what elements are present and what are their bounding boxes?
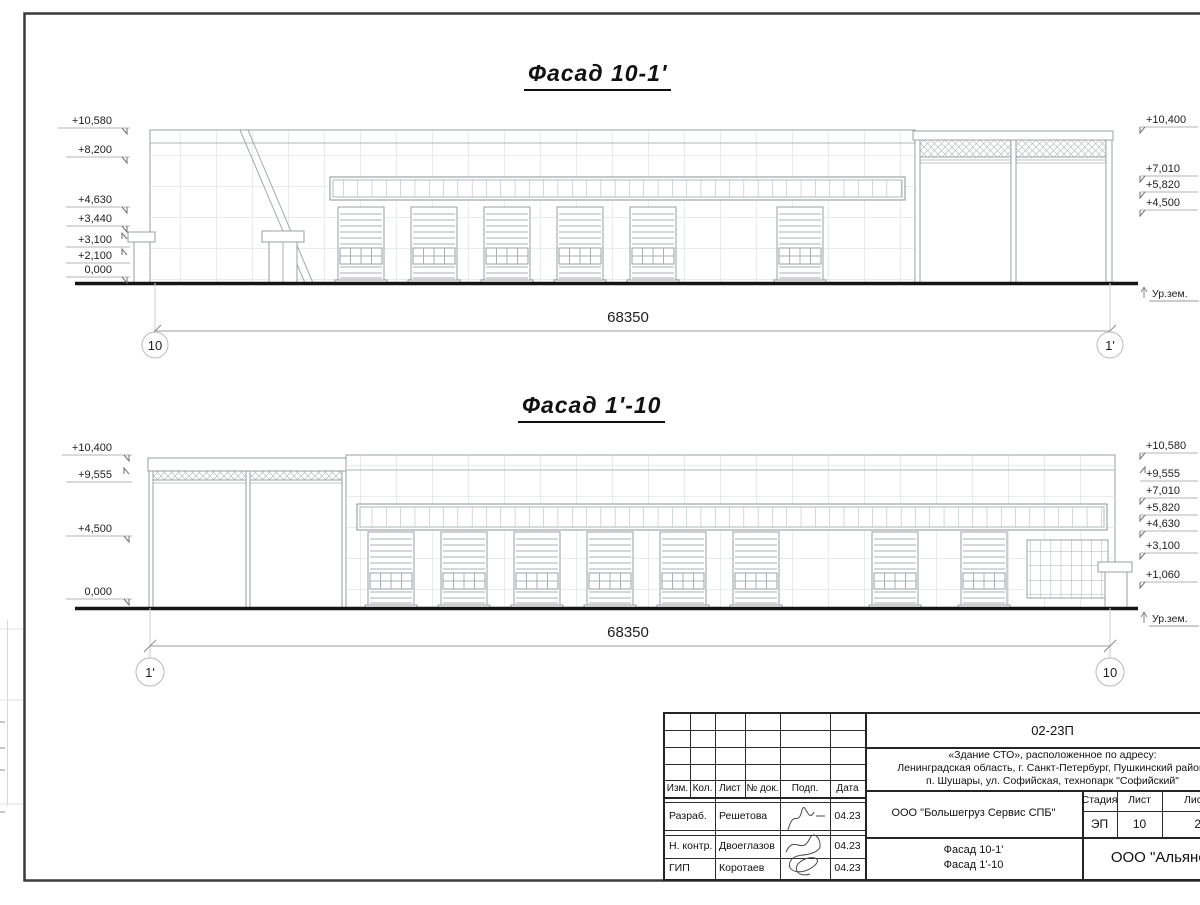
facade-bottom-title: Фасад 1'-10 xyxy=(518,392,665,423)
elevation-mark: +9,555 xyxy=(1146,468,1180,480)
elevation-mark: +3,100 xyxy=(1146,540,1180,552)
window-ribbon xyxy=(330,177,905,200)
row-role-gip: ГИП xyxy=(665,858,719,879)
axis-bubble-left: 10 xyxy=(142,332,168,358)
window-ribbon xyxy=(357,504,1107,530)
company-name: ООО "Большегруз Сервис СПБ" xyxy=(865,790,1082,837)
row-date-ncontrol: 04.23 xyxy=(830,835,865,858)
adjacent-sheet-sliver xyxy=(0,620,23,812)
axis-bubble-left: 1' xyxy=(136,658,164,686)
axis-bubble-right: 1' xyxy=(1097,332,1123,358)
elevation-marks-right: +10,580 +9,555 +7,010 +5,820 +4,630 +3,1… xyxy=(1140,440,1198,588)
drawing-sheet: Ур.зем. 68350 10 1' +10,580 +8,200 +4,63… xyxy=(0,0,1200,900)
side-canopy xyxy=(128,232,155,242)
elevation-marks-left: +10,580 +8,200 +4,630 +3,440 +3,100 +2,1… xyxy=(58,115,130,283)
row-name-gip: Коротаев xyxy=(715,858,784,879)
dimension-bottom: 68350 xyxy=(144,608,1116,658)
elevation-mark: +3,100 xyxy=(78,234,112,246)
contractor-name: ООО "Альянс" xyxy=(1082,837,1200,879)
ground-level-label: Ур.зем. xyxy=(1141,612,1199,626)
canopy-left xyxy=(148,458,348,608)
row-role-ncontrol: Н. контр. xyxy=(665,835,719,858)
col-header-list: Лист xyxy=(715,780,745,797)
elevation-mark: +8,200 xyxy=(78,144,112,156)
signature-ncontrol-gip xyxy=(780,832,830,880)
sheets-label: Листов xyxy=(1162,790,1200,811)
row-date-developer: 04.23 xyxy=(830,802,865,830)
axis-label: 1' xyxy=(1105,338,1115,353)
stage-value: ЭП xyxy=(1082,811,1117,837)
ground-label-text: Ур.зем. xyxy=(1152,288,1188,300)
elevation-mark: +10,580 xyxy=(72,115,112,127)
project-code: 02-23П xyxy=(865,714,1200,747)
elevation-mark: +5,820 xyxy=(1146,179,1180,191)
row-date-gip: 04.23 xyxy=(830,858,865,879)
elevation-mark: +4,500 xyxy=(1146,197,1180,209)
ground-label-text: Ур.зем. xyxy=(1152,613,1188,625)
elevation-mark: 0,000 xyxy=(84,264,112,276)
elevation-mark: +2,100 xyxy=(78,250,112,262)
elevation-mark: +4,630 xyxy=(1146,518,1180,530)
canopy-right xyxy=(913,131,1113,283)
address-line2: Ленинградская область, г. Санкт-Петербур… xyxy=(897,762,1200,775)
elevation-mark: +7,010 xyxy=(1146,485,1180,497)
elevation-mark: +9,555 xyxy=(78,469,112,481)
elevation-mark: +5,820 xyxy=(1146,502,1180,514)
elevation-marks-left: +10,400 +9,555 +4,500 0,000 xyxy=(62,442,132,605)
address-line3: п. Шушары, ул. Софийская, технопарк "Соф… xyxy=(926,775,1179,788)
facade-top-title: Фасад 10-1' xyxy=(524,60,671,91)
col-header-izm: Изм. xyxy=(665,780,690,797)
curtain-wall-window xyxy=(1027,540,1108,598)
col-header-podp: Подп. xyxy=(780,780,830,797)
col-header-data: Дата xyxy=(830,780,865,797)
elevation-mark: +10,580 xyxy=(1146,440,1186,452)
axis-label: 10 xyxy=(148,338,162,353)
sheet-label: Лист xyxy=(1117,790,1162,811)
dimension-value: 68350 xyxy=(607,624,649,641)
sheets-value: 21 xyxy=(1162,811,1200,837)
elevation-mark: +10,400 xyxy=(1146,114,1186,126)
elevation-mark: 0,000 xyxy=(84,586,112,598)
elevation-mark: +3,440 xyxy=(78,213,112,225)
drawing-name1: Фасад 10-1' xyxy=(944,843,1004,858)
elevation-mark: +10,400 xyxy=(72,442,112,454)
facade-top-drawing: Ур.зем. 68350 10 1' +10,580 +8,200 +4,63… xyxy=(58,114,1199,358)
sheet-value: 10 xyxy=(1117,811,1162,837)
row-name-developer: Решетова xyxy=(715,802,784,830)
col-header-doc: № док. xyxy=(745,780,780,797)
stage-label: Стадия xyxy=(1082,790,1117,811)
drawing-names: Фасад 10-1' Фасад 1'-10 xyxy=(865,837,1082,879)
axis-bubble-right: 10 xyxy=(1096,658,1124,686)
signature-developer xyxy=(782,802,828,834)
address-line1: «Здание СТО», расположенное по адресу: xyxy=(948,749,1156,762)
ground-level-label: Ур.зем. xyxy=(1141,287,1199,301)
elevation-mark: +4,630 xyxy=(78,194,112,206)
dimension-value: 68350 xyxy=(607,309,649,326)
drawing-name2: Фасад 1'-10 xyxy=(944,858,1004,873)
elevation-mark: +4,500 xyxy=(78,523,112,535)
dimension-top: 68350 xyxy=(149,283,1116,337)
project-address: «Здание СТО», расположенное по адресу: Л… xyxy=(865,747,1200,790)
axis-label: 10 xyxy=(1103,665,1117,680)
elevation-mark: +7,010 xyxy=(1146,163,1180,175)
elevation-mark: +1,060 xyxy=(1146,569,1180,581)
title-block: Изм. Кол. Лист № док. Подп. Дата Разраб.… xyxy=(663,712,1200,881)
axis-label: 1' xyxy=(145,665,155,680)
row-role-developer: Разраб. xyxy=(665,802,719,830)
row-name-ncontrol: Двоеглазов xyxy=(715,835,784,858)
col-header-kol: Кол. xyxy=(690,780,715,797)
elevation-marks-right: +10,400 +7,010 +5,820 +4,500 xyxy=(1140,114,1198,216)
facade-bottom-drawing: Ур.зем. 68350 1' 10 +10,400 +9,555 +4,50… xyxy=(62,440,1199,686)
